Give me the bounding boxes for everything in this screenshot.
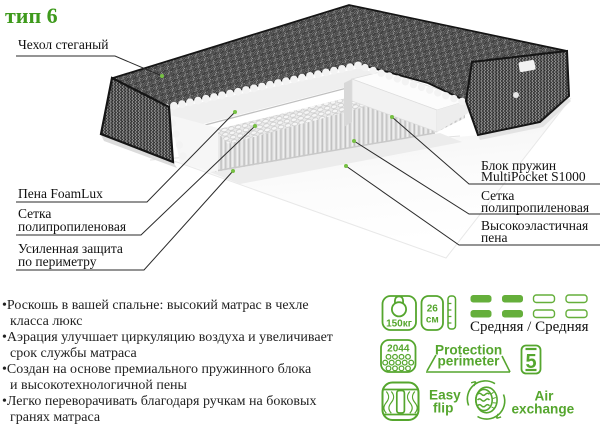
svg-text:•Создан на основе премиального: •Создан на основе премиального пружинног…: [2, 362, 312, 377]
svg-text:perimeter: perimeter: [438, 354, 501, 369]
svg-text:срок службы матраса: срок службы матраса: [10, 346, 138, 361]
svg-text:•Роскошь в вашей спальне: высо: •Роскошь в вашей спальне: высокий матрас…: [2, 298, 309, 313]
svg-text:класса люкс: класса люкс: [10, 314, 82, 329]
svg-text:см: см: [426, 315, 439, 326]
svg-text:5: 5: [525, 351, 536, 373]
svg-text:•Аэрация улучшает циркуляцию в: •Аэрация улучшает циркуляцию воздуха и у…: [2, 330, 333, 345]
svg-text:150кг: 150кг: [386, 319, 412, 330]
svg-text:26: 26: [427, 304, 439, 315]
svg-text:flip: flip: [433, 401, 453, 416]
svg-text:MultiPocket S1000: MultiPocket S1000: [481, 169, 586, 184]
svg-text:и высокотехнологичной пены: и высокотехнологичной пены: [10, 378, 188, 393]
svg-text:exchange: exchange: [512, 402, 575, 417]
svg-text:Чехол стеганый: Чехол стеганый: [18, 37, 108, 52]
svg-text:гранях матраса: гранях матраса: [10, 410, 101, 424]
svg-text:Пена FoamLux: Пена FoamLux: [18, 186, 103, 201]
svg-text:2044: 2044: [387, 344, 410, 355]
svg-text:•Легко переворачивать благодар: •Легко переворачивать благодаря ручкам н…: [2, 394, 316, 409]
svg-text:полипропиленовая: полипропиленовая: [481, 200, 589, 215]
svg-text:пена: пена: [481, 230, 507, 245]
svg-text:Средняя / Средняя: Средняя / Средняя: [470, 319, 589, 335]
svg-text:по периметру: по периметру: [18, 254, 97, 269]
svg-text:полипропиленовая: полипропиленовая: [18, 219, 126, 234]
svg-text:тип 6: тип 6: [5, 3, 58, 28]
